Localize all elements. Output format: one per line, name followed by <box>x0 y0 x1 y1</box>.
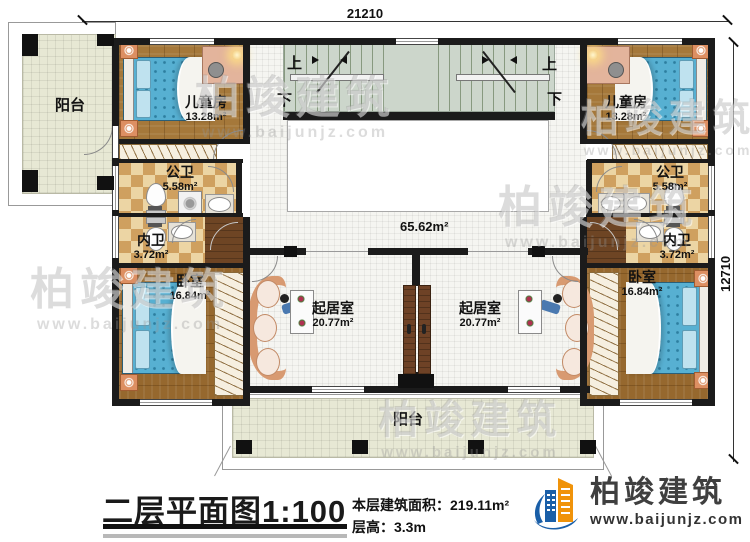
stair-wall <box>283 112 555 120</box>
room-area: 13.28m² <box>186 111 227 123</box>
door-leaf-icon <box>403 285 416 375</box>
interior-wall <box>580 267 587 406</box>
floor-plan-canvas: 21210 12710 阳台 上 下 上 下 65.62m² <box>0 0 750 542</box>
floor-area-line: 本层建筑面积：219.11m² <box>352 495 509 517</box>
room-name: 起居室 <box>459 301 501 317</box>
interior-wall <box>580 217 587 267</box>
plant-icon <box>297 295 305 303</box>
hall-area-label: 65.62m² <box>400 219 448 234</box>
coffee-table-icon <box>518 290 542 334</box>
room-area: 5.58m² <box>163 181 198 193</box>
floor-area-value: 219.11m² <box>450 497 509 513</box>
room-label-private-bath-left: 内卫 3.72m² <box>126 233 176 261</box>
plant-icon <box>525 295 533 303</box>
room-label-living-right: 起居室 20.77m² <box>452 301 508 329</box>
bed-headboard <box>124 58 134 120</box>
room-name: 内卫 <box>137 233 165 249</box>
room-area: 3.72m² <box>660 249 695 261</box>
room-name: 儿童房 <box>185 95 227 111</box>
window-icon <box>150 38 214 45</box>
room-area: 5.58m² <box>653 181 688 193</box>
stair-rail <box>290 74 384 81</box>
top-dimension-label: 21210 <box>330 6 400 21</box>
room-label-public-bath-left: 公卫 5.58m² <box>155 165 205 193</box>
window-icon <box>312 386 364 393</box>
room-area: 20.77m² <box>460 317 501 329</box>
sink-basin <box>627 196 647 211</box>
interior-wall <box>587 159 708 163</box>
nightstand-icon <box>120 267 138 284</box>
room-name: 儿童房 <box>605 95 647 111</box>
window-icon <box>708 216 715 258</box>
stair-down-label: 下 <box>547 88 562 109</box>
right-dimension-line <box>733 42 734 462</box>
column <box>352 440 368 454</box>
door-handle <box>407 324 411 334</box>
interior-wall <box>246 248 306 255</box>
column <box>580 440 596 454</box>
bed-headboard <box>696 58 706 120</box>
bed-pillow <box>136 60 151 88</box>
sink-basin <box>208 197 231 212</box>
plant-icon <box>526 319 534 327</box>
interior-wall <box>236 160 242 217</box>
room-label-public-bath-right: 公卫 5.58m² <box>645 165 695 193</box>
sink-icon <box>624 193 650 214</box>
room-area: 16.84m² <box>170 290 211 302</box>
interior-wall <box>243 217 250 267</box>
plan-info: 本层建筑面积：219.11m² 层高：3.3m <box>352 495 509 538</box>
bed-pillow <box>682 287 697 327</box>
column <box>284 246 297 257</box>
room-label-balcony-left: 阳台 <box>44 98 96 115</box>
stair-up-label: 上 <box>287 52 302 73</box>
column <box>22 34 38 56</box>
floor-height-label: 层高： <box>352 519 394 535</box>
stair-arrow-head-icon <box>340 56 347 64</box>
room-name: 卧室 <box>176 274 204 290</box>
room-label-private-bath-right: 内卫 3.72m² <box>652 233 702 261</box>
window-icon <box>112 216 119 258</box>
window-icon <box>140 399 212 406</box>
sofa-cushion <box>256 348 280 376</box>
room-name: 卧室 <box>628 270 656 286</box>
top-dimension-line <box>82 21 728 22</box>
center-wall <box>412 254 420 286</box>
bed-pillow <box>135 287 150 327</box>
window-icon <box>618 38 682 45</box>
logo-icon <box>528 474 582 532</box>
window-icon <box>620 399 692 406</box>
interior-wall <box>368 248 468 255</box>
room-label-children-right: 儿童房 13.28m² <box>598 95 654 123</box>
sink-icon <box>598 193 624 214</box>
interior-wall <box>119 139 243 144</box>
bed-headboard <box>123 283 133 373</box>
sink-icon <box>205 194 234 215</box>
interior-wall <box>587 213 708 217</box>
double-height-void <box>287 120 549 212</box>
interior-wall <box>580 45 587 144</box>
floor-height-value: 3.3m <box>394 519 426 535</box>
room-name: 阳台 <box>55 98 85 115</box>
room-area: 20.77m² <box>313 317 354 329</box>
opening-line <box>468 251 528 252</box>
column <box>97 34 114 46</box>
room-name: 起居室 <box>312 301 354 317</box>
logo-text-block: 柏竣建筑 www.baijunjz.com <box>590 478 743 528</box>
door-opening <box>112 126 119 158</box>
room-area: 16.84m² <box>622 286 663 298</box>
room-label-living-left: 起居室 20.77m² <box>305 301 361 329</box>
interior-wall <box>586 160 592 217</box>
room-area: 13.28m² <box>606 111 647 123</box>
room-name: 阳台 <box>393 412 423 429</box>
column <box>398 374 434 388</box>
interior-wall <box>112 263 250 268</box>
room-label-children-left: 儿童房 13.28m² <box>178 95 234 123</box>
room-area: 3.72m² <box>134 249 169 261</box>
door-handle <box>422 324 426 334</box>
door-leaf-icon <box>418 285 431 375</box>
interior-wall <box>587 139 708 144</box>
room-label-bedroom-right: 卧室 16.84m² <box>612 270 672 298</box>
room-name: 公卫 <box>166 165 194 181</box>
room-label-balcony-bottom: 阳台 <box>382 412 434 429</box>
bed-pillow <box>679 60 694 88</box>
person-icon <box>553 294 562 303</box>
room-name: 公卫 <box>656 165 684 181</box>
stair-up-label: 上 <box>542 53 557 74</box>
room-label-bedroom-left: 卧室 16.84m² <box>160 274 220 302</box>
stair-down-label: 下 <box>277 89 292 110</box>
title-underline <box>103 524 347 529</box>
company-name: 柏竣建筑 <box>590 478 743 508</box>
lamp-icon <box>588 50 598 60</box>
sofa-cushion <box>256 280 280 308</box>
interior-wall <box>243 45 250 144</box>
chair-icon <box>208 62 224 78</box>
bed-pillow <box>682 330 697 370</box>
interior-wall <box>119 213 243 217</box>
interior-wall <box>243 267 250 406</box>
column <box>236 440 252 454</box>
column <box>468 440 484 454</box>
title-underline-shadow <box>103 534 347 538</box>
window-icon <box>396 38 438 45</box>
chair-icon <box>608 62 624 78</box>
window-icon <box>708 166 715 210</box>
washing-machine-icon <box>178 191 202 214</box>
stair-arrow-head-icon <box>510 56 517 64</box>
stair-arrow-head-icon <box>312 56 319 64</box>
bed-pillow <box>135 330 150 370</box>
lamp-icon <box>232 50 242 60</box>
column <box>532 246 545 257</box>
company-website: www.baijunjz.com <box>590 511 743 528</box>
opening-line <box>306 251 368 252</box>
interior-wall <box>580 263 715 268</box>
sofa-cushion <box>253 314 277 342</box>
bed-pillow <box>679 90 694 118</box>
right-dimension-label: 12710 <box>718 228 733 292</box>
nightstand-icon <box>120 374 138 391</box>
bed-pillow <box>136 90 151 118</box>
nightstand-icon <box>120 120 138 137</box>
column <box>97 176 114 190</box>
floor-height-line: 层高：3.3m <box>352 517 509 539</box>
room-name: 内卫 <box>663 233 691 249</box>
dimension-tick <box>722 15 733 26</box>
person-icon <box>280 294 289 303</box>
floor-area-label: 本层建筑面积： <box>352 497 450 513</box>
window-icon <box>508 386 560 393</box>
company-logo: 柏竣建筑 www.baijunjz.com <box>528 474 743 532</box>
sink-basin <box>601 196 621 211</box>
interior-wall <box>119 159 243 163</box>
column <box>22 170 38 192</box>
stair-arrow-head-icon <box>482 56 489 64</box>
